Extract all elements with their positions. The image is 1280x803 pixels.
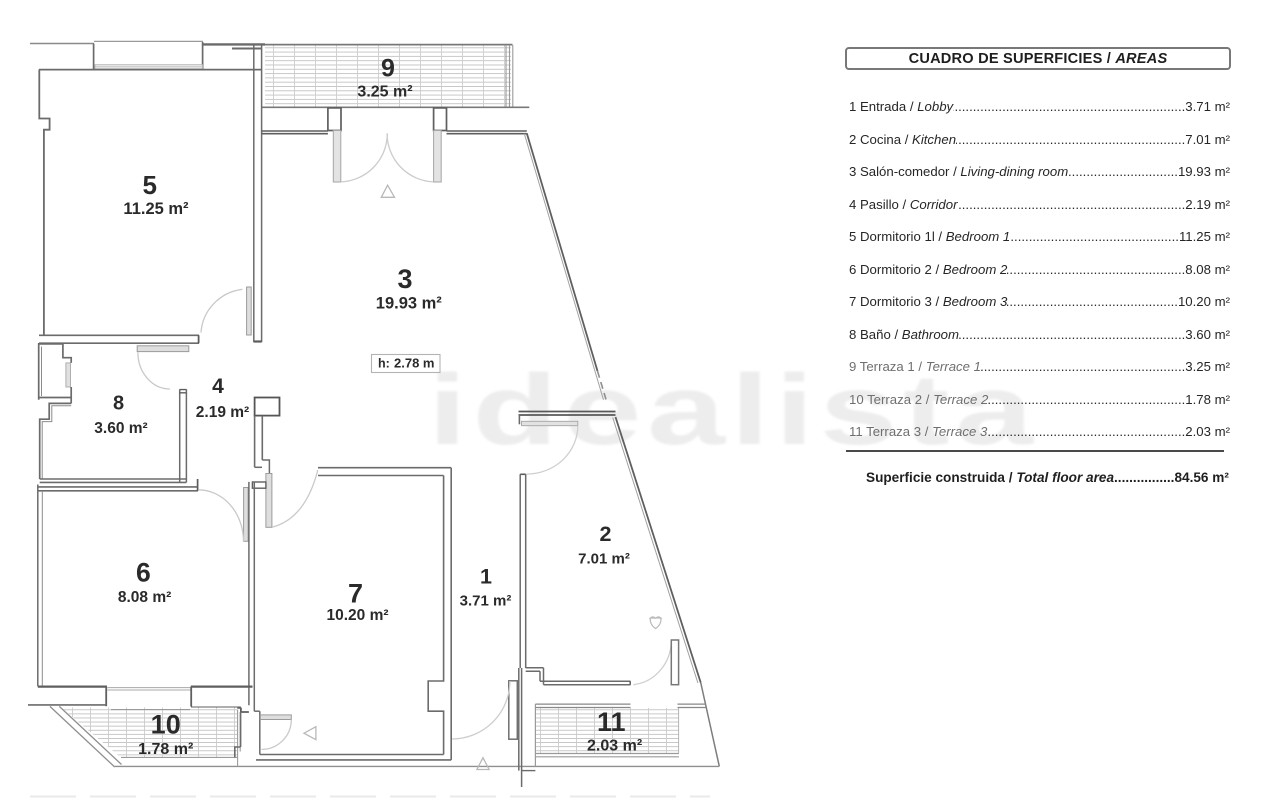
svg-text:19.93 m²: 19.93 m² [376, 295, 443, 313]
svg-text:2.03 m²: 2.03 m² [587, 737, 642, 754]
svg-text:3: 3 [397, 264, 412, 294]
svg-text:2.19 m²: 2.19 m² [196, 404, 249, 421]
svg-text:6: 6 [136, 558, 151, 588]
svg-text:1: 1 [480, 565, 492, 589]
svg-text:8.08 m²: 8.08 m² [118, 589, 171, 606]
svg-text:7: 7 [348, 579, 363, 609]
svg-text:10.20 m²: 10.20 m² [326, 607, 388, 624]
svg-text:8: 8 [113, 392, 124, 414]
svg-text:2: 2 [600, 522, 612, 546]
svg-text:5: 5 [142, 170, 156, 200]
svg-text:3.71 m²: 3.71 m² [460, 593, 512, 610]
svg-text:2.78 m: 2.78 m [394, 356, 434, 371]
svg-text:4: 4 [212, 375, 224, 398]
svg-text:11.25 m²: 11.25 m² [123, 200, 189, 218]
svg-text:7.01 m²: 7.01 m² [578, 551, 630, 568]
svg-text:h:: h: [378, 357, 390, 371]
svg-text:11: 11 [597, 707, 626, 737]
svg-text:10: 10 [151, 710, 181, 740]
svg-text:3.60 m²: 3.60 m² [94, 420, 147, 437]
svg-text:1.78 m²: 1.78 m² [138, 741, 193, 758]
svg-text:3.25 m²: 3.25 m² [357, 83, 412, 100]
svg-text:9: 9 [381, 55, 395, 83]
